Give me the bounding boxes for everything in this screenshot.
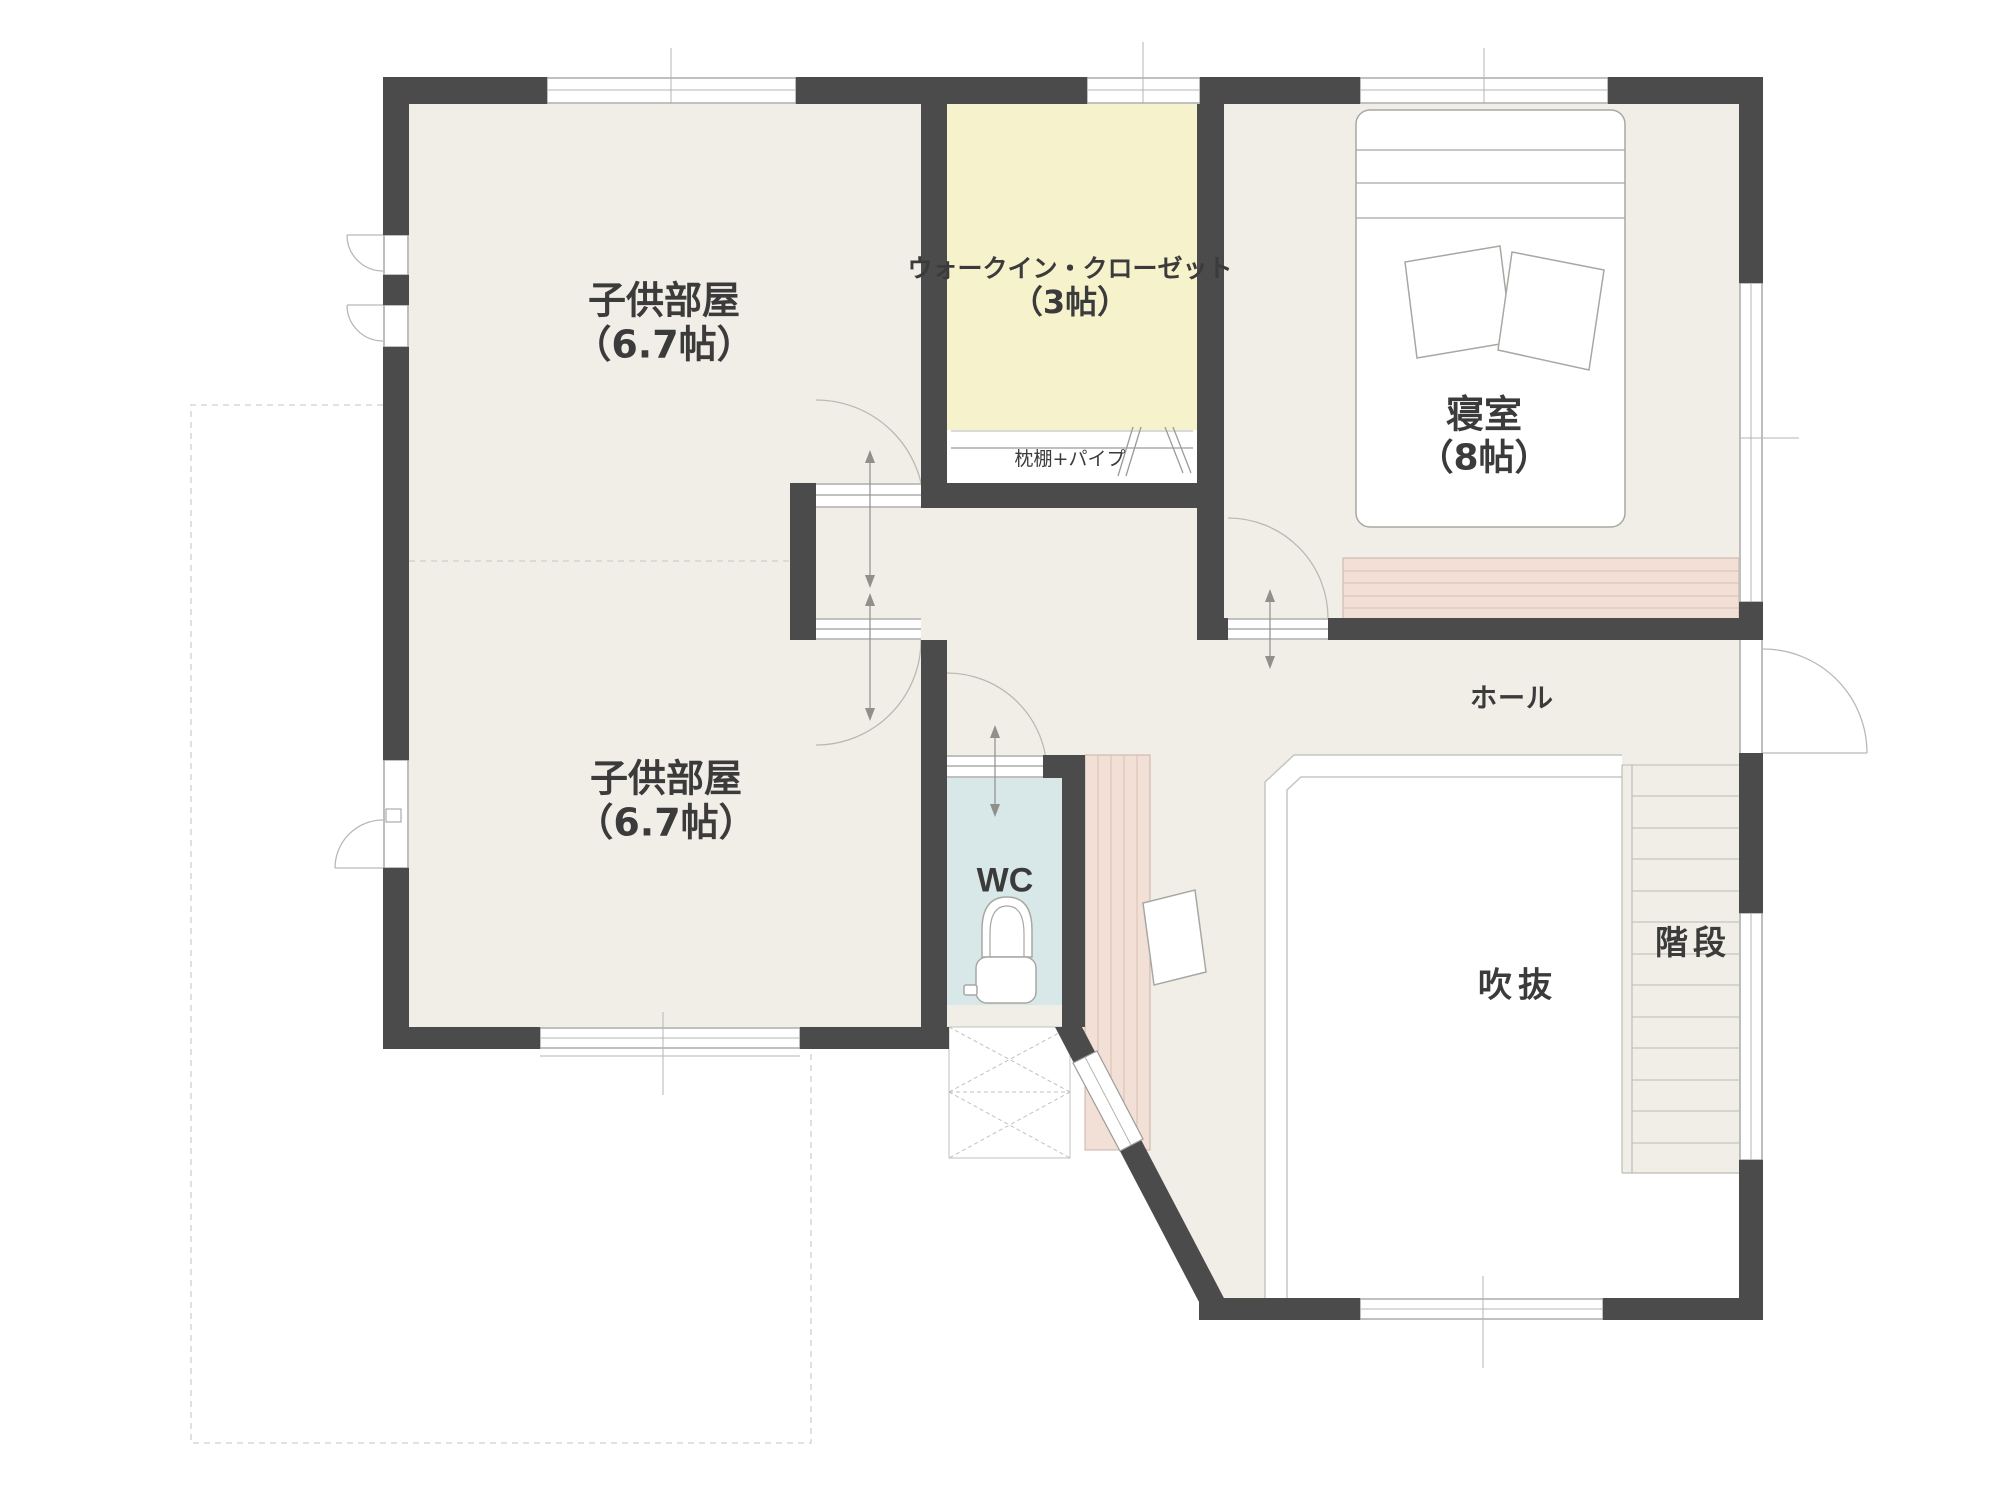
walk-in-closet-floor xyxy=(947,104,1197,483)
floor-plan-drawing xyxy=(0,0,1999,1500)
window-top-kids-room xyxy=(547,48,796,104)
pillow-left xyxy=(1405,246,1512,358)
window-right-stairs xyxy=(1739,913,1763,1160)
window-top-closet xyxy=(1087,42,1200,104)
window-left-casement-3 xyxy=(335,760,409,868)
shaft-below-wc xyxy=(949,1027,1070,1158)
double-bed xyxy=(1356,110,1625,527)
door-leaf-hall xyxy=(1143,890,1206,985)
window-top-bedroom xyxy=(1360,48,1608,104)
window-left-casement-1 xyxy=(347,235,409,275)
window-right-bedroom xyxy=(1739,283,1799,602)
pillow-right xyxy=(1498,252,1604,370)
door-right-exterior xyxy=(1739,640,1867,753)
floor-plan: 子供部屋 （6.7帖） ウォークイン・クローゼット （3帖） 寝室 （8帖） 枕… xyxy=(0,0,1999,1500)
bedroom-counter-band xyxy=(1343,558,1739,620)
window-left-casement-2 xyxy=(347,305,409,347)
